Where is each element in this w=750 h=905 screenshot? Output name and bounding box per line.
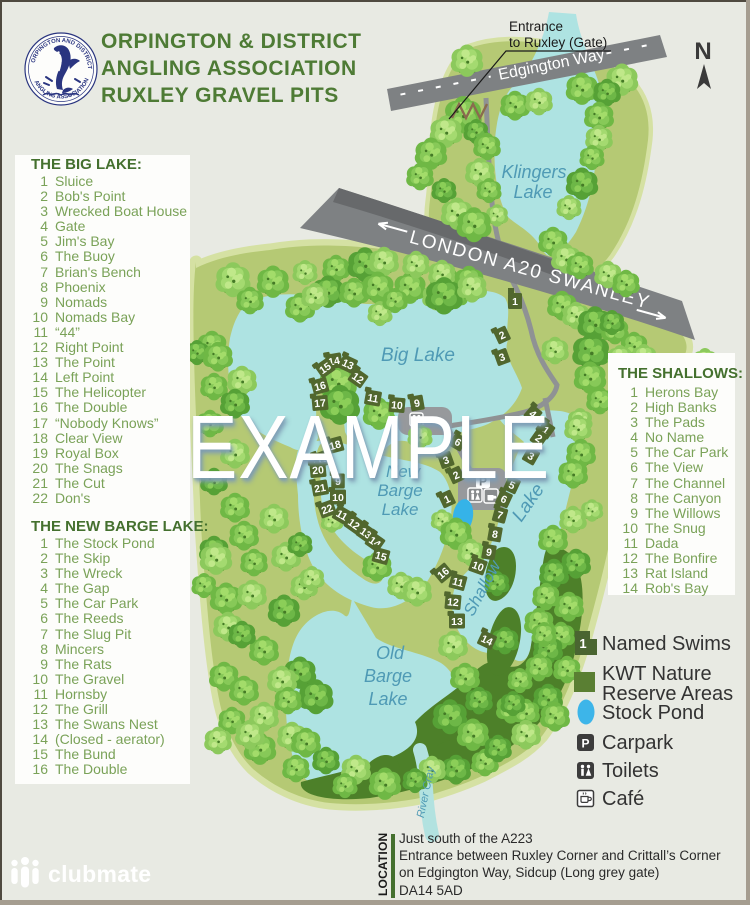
svg-text:Café: Café — [602, 788, 644, 810]
svg-text:N: N — [694, 38, 711, 65]
svg-text:Stock Pond: Stock Pond — [602, 702, 704, 724]
svg-text:Entrance: Entrance — [509, 19, 563, 34]
svg-text:to Ruxley (Gate): to Ruxley (Gate) — [509, 35, 607, 50]
svg-text:Big Lake: Big Lake — [381, 345, 455, 366]
svg-text:Lake: Lake — [368, 689, 407, 709]
svg-text:Old: Old — [376, 643, 405, 663]
svg-text:Carpark: Carpark — [602, 732, 674, 754]
svg-text:1: 1 — [579, 636, 586, 651]
svg-text:P: P — [581, 737, 589, 751]
svg-text:Lake: Lake — [513, 182, 552, 202]
svg-text:13: 13 — [451, 616, 463, 628]
svg-text:Barge: Barge — [364, 666, 412, 686]
svg-text:1: 1 — [512, 296, 518, 308]
svg-text:Lake: Lake — [382, 500, 419, 519]
svg-text:clubmate: clubmate — [48, 861, 151, 887]
svg-text:Named Swims: Named Swims — [602, 633, 731, 655]
svg-text:KWT Nature: KWT Nature — [602, 663, 712, 685]
svg-text:Klingers: Klingers — [501, 162, 566, 182]
svg-text:12: 12 — [447, 596, 460, 609]
svg-text:Toilets: Toilets — [602, 760, 659, 782]
